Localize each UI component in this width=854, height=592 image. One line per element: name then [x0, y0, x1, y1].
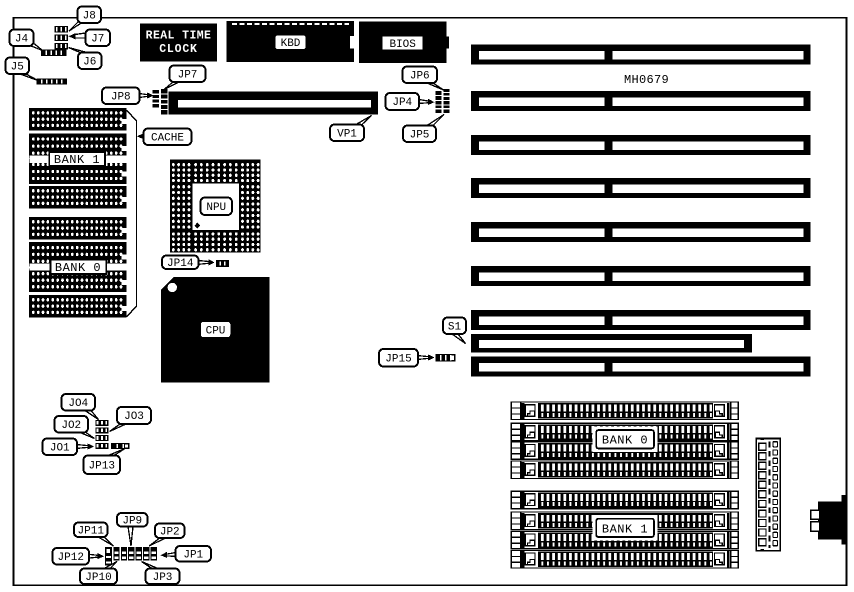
- svg-text:NPU: NPU: [206, 202, 226, 214]
- svg-text:JP1: JP1: [183, 550, 203, 562]
- svg-text:JP14: JP14: [167, 258, 194, 270]
- svg-text:J6: J6: [83, 57, 96, 69]
- svg-text:JP5: JP5: [410, 130, 430, 142]
- svg-text:JP15: JP15: [385, 354, 411, 366]
- svg-text:BANK 1: BANK 1: [602, 522, 648, 536]
- svg-text:JP9: JP9: [122, 516, 142, 528]
- svg-text:CACHE: CACHE: [151, 133, 184, 145]
- svg-text:JP12: JP12: [58, 552, 84, 564]
- svg-text:JP10: JP10: [85, 572, 111, 584]
- svg-text:KBD: KBD: [281, 38, 301, 50]
- svg-text:BIOS: BIOS: [389, 39, 416, 51]
- svg-text:BANK 1: BANK 1: [54, 153, 100, 167]
- svg-text:JP3: JP3: [153, 572, 173, 584]
- svg-text:JP6: JP6: [410, 71, 430, 83]
- svg-text:JP13: JP13: [89, 461, 115, 473]
- svg-text:JO3: JO3: [124, 411, 144, 423]
- svg-text:REAL TIME: REAL TIME: [146, 30, 212, 43]
- svg-text:BANK 0: BANK 0: [602, 434, 648, 448]
- svg-text:JP11: JP11: [78, 526, 105, 538]
- svg-text:JP4: JP4: [392, 97, 412, 109]
- svg-text:JP8: JP8: [111, 92, 131, 104]
- svg-text:J5: J5: [11, 62, 24, 74]
- svg-text:J4: J4: [15, 34, 29, 46]
- svg-text:CLOCK: CLOCK: [159, 43, 198, 56]
- svg-text:JP2: JP2: [160, 527, 180, 539]
- svg-text:S1: S1: [448, 322, 462, 334]
- svg-text:JO1: JO1: [50, 443, 70, 455]
- svg-text:VP1: VP1: [337, 129, 357, 141]
- svg-text:J8: J8: [83, 11, 96, 23]
- svg-text:MH0679: MH0679: [624, 73, 669, 87]
- svg-text:J7: J7: [91, 34, 104, 46]
- svg-text:JO2: JO2: [61, 420, 81, 432]
- svg-text:JO4: JO4: [68, 398, 88, 410]
- svg-text:BANK 0: BANK 0: [55, 261, 101, 275]
- svg-text:CPU: CPU: [206, 326, 226, 338]
- svg-text:JP7: JP7: [178, 70, 198, 82]
